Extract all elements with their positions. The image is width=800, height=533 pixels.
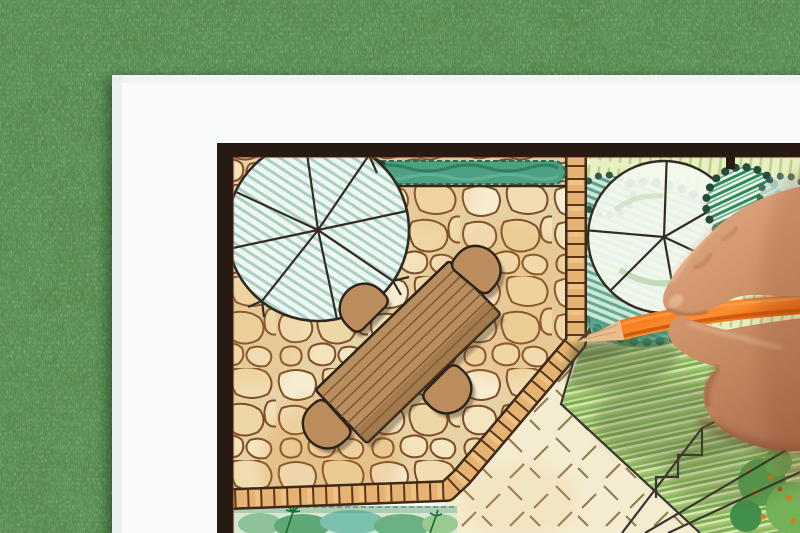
planting-bed-bottom: [233, 505, 458, 533]
frame-tick: [726, 157, 735, 169]
scene: [0, 0, 800, 533]
photo-canvas: [0, 0, 800, 533]
